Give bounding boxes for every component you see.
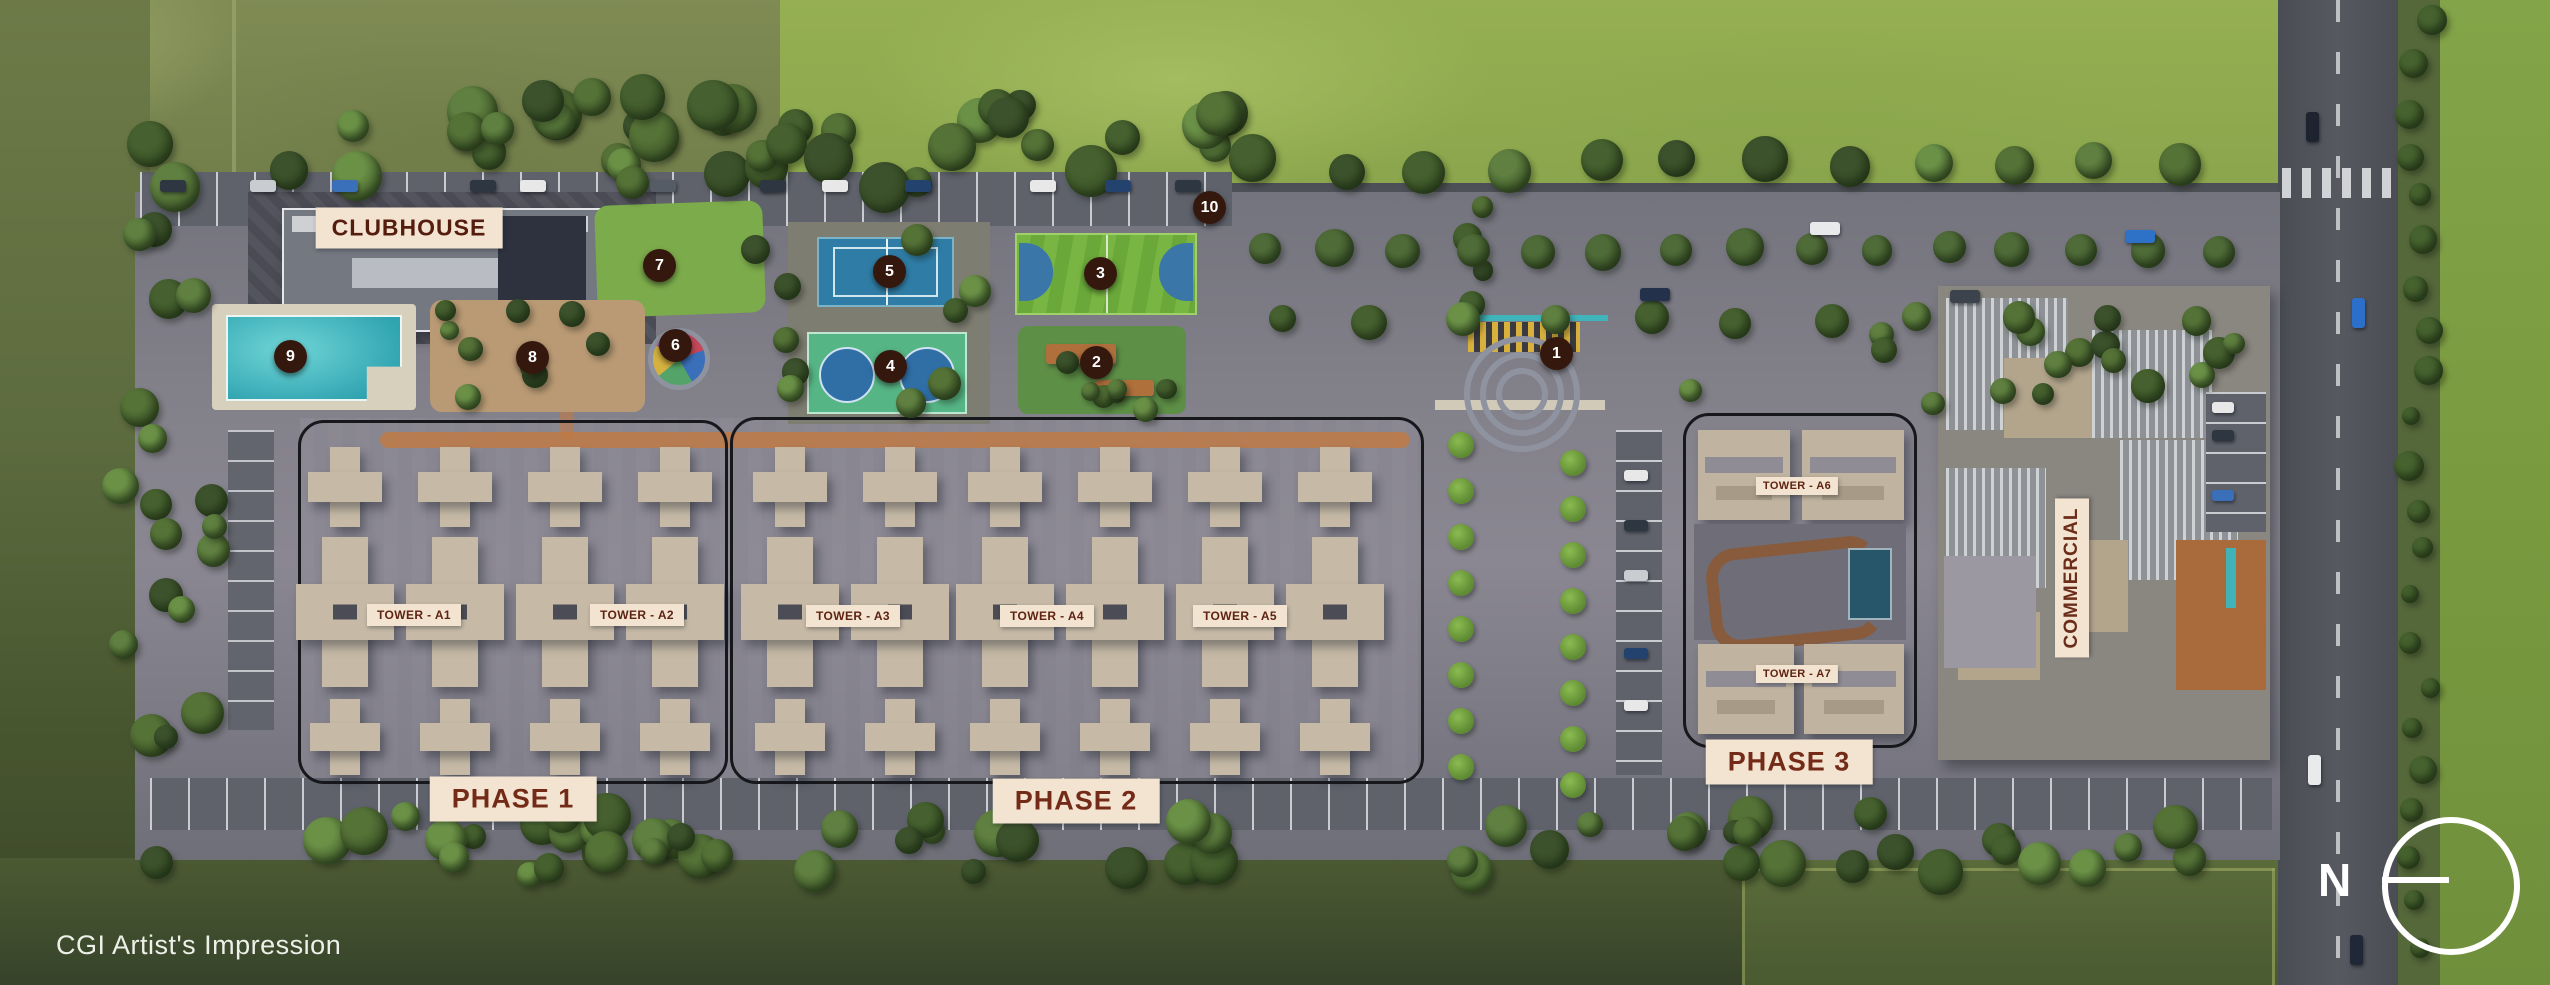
north-compass-icon xyxy=(2382,817,2520,955)
tree xyxy=(2409,225,2438,254)
tree xyxy=(2044,351,2071,378)
tree xyxy=(1447,846,1477,876)
palm-tree xyxy=(1448,708,1474,734)
palm-tree xyxy=(1560,542,1586,568)
tree xyxy=(1472,196,1494,218)
tree xyxy=(1081,382,1100,401)
car xyxy=(2212,430,2234,441)
amenity-marker-5: 5 xyxy=(873,255,906,288)
tree xyxy=(2399,632,2421,654)
tower-building xyxy=(970,699,1040,775)
tree xyxy=(140,846,173,879)
tree xyxy=(804,133,854,183)
tree xyxy=(2101,348,2126,373)
tree xyxy=(1862,235,1893,266)
tree xyxy=(481,112,513,144)
tree xyxy=(332,151,382,201)
tree xyxy=(2397,144,2424,171)
tree xyxy=(1577,812,1602,837)
tree xyxy=(522,80,564,122)
car xyxy=(2352,298,2365,328)
tree xyxy=(1918,849,1963,894)
tree xyxy=(794,850,836,892)
car xyxy=(2212,490,2234,501)
car xyxy=(905,180,931,192)
tree xyxy=(1521,235,1555,269)
tower-label: TOWER - A4 xyxy=(1000,605,1094,627)
tree xyxy=(1457,234,1490,267)
tree xyxy=(1166,799,1211,844)
amenity-marker-9: 9 xyxy=(274,340,307,373)
tower-building xyxy=(1080,699,1150,775)
tree xyxy=(391,802,420,831)
amenity-marker-1: 1 xyxy=(1540,337,1573,370)
tree xyxy=(901,224,933,256)
palm-tree xyxy=(1560,496,1586,522)
tree xyxy=(620,74,665,119)
tree xyxy=(1726,228,1764,266)
amenity-marker-10: 10 xyxy=(1193,191,1226,224)
tree xyxy=(2153,805,2198,850)
tower-label: TOWER - A2 xyxy=(590,604,684,626)
tree xyxy=(2409,756,2437,784)
tree xyxy=(987,97,1028,138)
tower-building xyxy=(308,447,382,527)
car xyxy=(2350,935,2363,965)
tree xyxy=(996,819,1039,862)
tree xyxy=(1056,351,1079,374)
tree xyxy=(1995,146,2035,186)
tree xyxy=(2114,833,2143,862)
palm-tree xyxy=(1560,680,1586,706)
tree xyxy=(928,123,976,171)
tower-label: TOWER - A7 xyxy=(1756,665,1838,683)
tree xyxy=(616,166,649,199)
tree xyxy=(741,235,770,264)
palm-tree xyxy=(1448,570,1474,596)
tree xyxy=(1133,397,1158,422)
amenity-marker-4: 4 xyxy=(874,350,907,383)
car xyxy=(1105,180,1131,192)
tower-building xyxy=(863,447,937,527)
tower-building xyxy=(755,699,825,775)
tower-label: TOWER - A5 xyxy=(1193,605,1287,627)
tree xyxy=(435,300,456,321)
dynamic-layer: TOWER - A1TOWER - A2TOWER - A3TOWER - A4… xyxy=(0,0,2550,985)
car xyxy=(2125,230,2155,243)
amenity-marker-7: 7 xyxy=(643,249,676,282)
tree xyxy=(1830,146,1870,186)
tree xyxy=(1871,337,1897,363)
tree xyxy=(1915,144,1953,182)
tree xyxy=(120,388,159,427)
car xyxy=(1640,288,1670,301)
tree xyxy=(2407,500,2430,523)
car xyxy=(1950,290,1980,303)
tree xyxy=(154,725,178,749)
tree xyxy=(2075,142,2112,179)
car xyxy=(332,180,358,192)
tree xyxy=(1796,233,1828,265)
tower-label: TOWER - A6 xyxy=(1756,477,1838,495)
tree xyxy=(1229,134,1277,182)
tree xyxy=(102,468,139,505)
car xyxy=(1624,520,1648,531)
tree xyxy=(1635,300,1669,334)
tree xyxy=(1446,302,1480,336)
tree xyxy=(506,299,530,323)
amenity-marker-6: 6 xyxy=(659,329,692,362)
amenity-marker-8: 8 xyxy=(516,341,549,374)
tree xyxy=(2409,183,2431,205)
tree xyxy=(1105,847,1147,889)
tree xyxy=(2203,236,2235,268)
tree xyxy=(176,278,211,313)
car xyxy=(1175,180,1201,192)
car xyxy=(1624,700,1648,711)
tree xyxy=(2182,306,2212,336)
phase-label: PHASE 1 xyxy=(430,777,597,822)
tree xyxy=(2414,356,2443,385)
tree xyxy=(2159,143,2202,186)
palm-tree xyxy=(1560,726,1586,752)
tree xyxy=(585,831,628,874)
tree xyxy=(1660,234,1692,266)
tree xyxy=(2032,383,2054,405)
tree xyxy=(821,810,858,847)
phase-label: PHASE 3 xyxy=(1706,740,1873,785)
palm-tree xyxy=(1560,450,1586,476)
amenity-marker-2: 2 xyxy=(1080,346,1113,379)
tower-building xyxy=(1188,447,1262,527)
car xyxy=(1624,470,1648,481)
palm-tree xyxy=(1448,432,1474,458)
tree xyxy=(1933,231,1966,264)
tree xyxy=(2223,333,2244,354)
tree xyxy=(109,630,138,659)
palm-tree xyxy=(1560,772,1586,798)
tree xyxy=(1719,308,1750,339)
commercial-label: COMMERCIAL xyxy=(2055,499,2089,658)
palm-tree xyxy=(1448,478,1474,504)
car xyxy=(1030,180,1056,192)
tower-building xyxy=(865,699,935,775)
tower-building xyxy=(1078,447,1152,527)
tree xyxy=(704,151,750,197)
tower-building xyxy=(968,447,1042,527)
tree xyxy=(1156,379,1176,399)
tree xyxy=(586,332,610,356)
tree xyxy=(150,518,182,550)
tree xyxy=(773,327,799,353)
car xyxy=(2306,112,2319,142)
car xyxy=(160,180,186,192)
tower-building xyxy=(638,447,712,527)
tower-label: TOWER - A3 xyxy=(806,605,900,627)
tree xyxy=(1991,834,2021,864)
tree xyxy=(2094,305,2121,332)
tree xyxy=(1679,379,1702,402)
tower-building xyxy=(418,447,492,527)
tree xyxy=(1723,845,1759,881)
tower-building xyxy=(1298,447,1372,527)
tree xyxy=(2003,301,2035,333)
tree xyxy=(181,692,223,734)
tree xyxy=(127,121,173,167)
tree xyxy=(140,489,171,520)
tree xyxy=(896,388,926,418)
tree xyxy=(2131,369,2165,403)
palm-tree xyxy=(1448,616,1474,642)
tree xyxy=(138,424,166,452)
tree xyxy=(1836,850,1869,883)
tree xyxy=(1385,234,1419,268)
tree xyxy=(766,123,807,164)
tree xyxy=(1196,92,1241,137)
tree xyxy=(928,367,961,400)
tree xyxy=(1541,305,1570,334)
palm-tree xyxy=(1560,634,1586,660)
car xyxy=(470,180,496,192)
tree xyxy=(195,484,228,517)
tree xyxy=(2394,451,2424,481)
tree xyxy=(777,375,804,402)
tree xyxy=(1877,834,1913,870)
car xyxy=(2308,755,2321,785)
tree xyxy=(340,807,388,855)
clubhouse-label: CLUBHOUSE xyxy=(316,208,503,249)
palm-tree xyxy=(1448,662,1474,688)
tree xyxy=(687,80,739,132)
tower-building xyxy=(420,699,490,775)
tree xyxy=(1485,805,1527,847)
tree xyxy=(961,859,986,884)
tree xyxy=(701,839,733,871)
tree xyxy=(1249,233,1280,264)
tower-building xyxy=(310,699,380,775)
tree xyxy=(458,337,482,361)
car xyxy=(2212,402,2234,413)
tree xyxy=(859,162,910,213)
tower-building xyxy=(530,699,600,775)
car xyxy=(1624,570,1648,581)
tree xyxy=(123,218,156,251)
tree xyxy=(895,827,923,855)
tree xyxy=(1581,139,1623,181)
tree xyxy=(2069,849,2107,887)
tree xyxy=(1105,120,1140,155)
car xyxy=(1810,222,1840,235)
tree xyxy=(1351,305,1386,340)
tree xyxy=(1315,229,1353,267)
tower-building xyxy=(640,699,710,775)
tree xyxy=(337,110,369,142)
tree xyxy=(1994,232,2029,267)
tree xyxy=(2065,234,2097,266)
amenity-marker-3: 3 xyxy=(1084,257,1117,290)
car xyxy=(822,180,848,192)
tree xyxy=(1329,154,1366,191)
tree xyxy=(2403,276,2429,302)
tree xyxy=(2402,718,2422,738)
tree xyxy=(440,321,459,340)
tree xyxy=(640,838,667,865)
tree xyxy=(1658,140,1695,177)
tree xyxy=(2401,585,2419,603)
tree xyxy=(1021,129,1054,162)
palm-tree xyxy=(1448,524,1474,550)
tree xyxy=(2400,798,2423,821)
tree xyxy=(2402,407,2420,425)
car xyxy=(520,180,546,192)
tree xyxy=(2018,842,2061,885)
tower-building xyxy=(1286,537,1384,687)
car xyxy=(250,180,276,192)
tree xyxy=(2399,49,2428,78)
tower-building xyxy=(753,447,827,527)
tree xyxy=(2412,537,2433,558)
tree xyxy=(168,596,195,623)
tree xyxy=(534,853,564,883)
tree xyxy=(1854,797,1887,830)
palm-tree xyxy=(1560,588,1586,614)
tree xyxy=(1759,840,1806,887)
tree xyxy=(2416,317,2443,344)
tower-building xyxy=(1190,699,1260,775)
palm-tree xyxy=(1448,754,1474,780)
tree xyxy=(559,301,585,327)
tree xyxy=(943,298,968,323)
north-compass-pointer xyxy=(2382,877,2449,883)
tree xyxy=(2395,100,2424,129)
tree xyxy=(1488,149,1531,192)
tree xyxy=(1902,302,1931,331)
tree xyxy=(1921,392,1945,416)
car xyxy=(1624,648,1648,659)
north-label: N xyxy=(2318,853,2351,907)
tree xyxy=(774,273,801,300)
car xyxy=(760,180,786,192)
tree xyxy=(202,514,227,539)
tree xyxy=(439,842,470,873)
tree xyxy=(1815,304,1850,339)
tree xyxy=(1585,234,1622,271)
tree xyxy=(455,384,481,410)
tower-label: TOWER - A1 xyxy=(367,604,461,626)
tree xyxy=(1530,830,1569,869)
tree xyxy=(573,78,611,116)
tower-building xyxy=(1300,699,1370,775)
tree xyxy=(1742,136,1788,182)
tree xyxy=(1402,151,1445,194)
tower-building xyxy=(528,447,602,527)
tree xyxy=(1990,378,2016,404)
tree xyxy=(1733,817,1763,847)
cgi-disclaimer: CGI Artist's Impression xyxy=(56,930,341,961)
tree xyxy=(2421,678,2440,697)
phase-label: PHASE 2 xyxy=(993,779,1160,824)
tree xyxy=(1269,305,1296,332)
tree xyxy=(1107,379,1127,399)
site-plan: TOWER - A1TOWER - A2TOWER - A3TOWER - A4… xyxy=(0,0,2550,985)
car xyxy=(650,180,676,192)
tree xyxy=(2417,5,2447,35)
